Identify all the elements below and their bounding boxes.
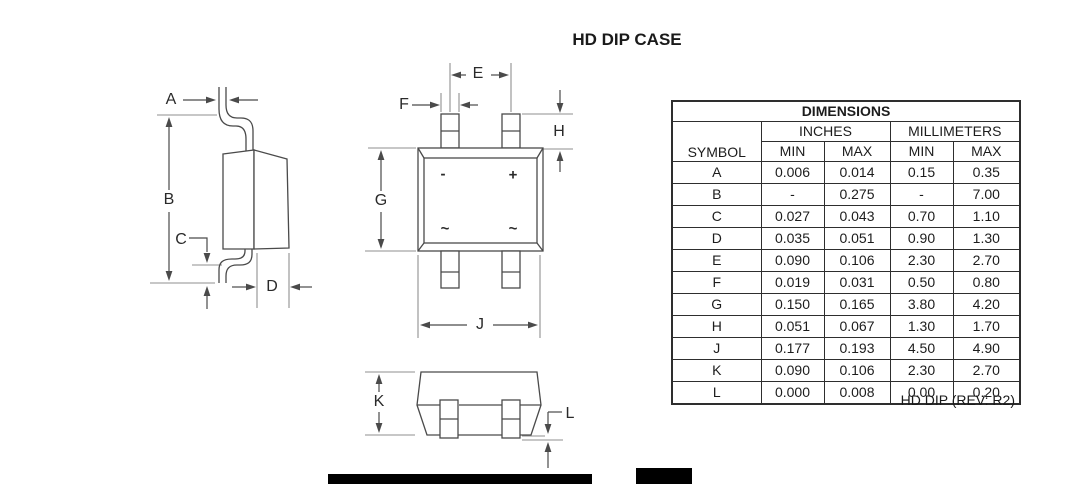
cell: 7.00 (953, 183, 1020, 205)
cell-symbol: K (672, 359, 761, 381)
cell: 0.006 (761, 161, 824, 183)
ac-terminal-mark-left: ~ (441, 222, 450, 237)
table-row: D 0.035 0.051 0.90 1.30 (672, 227, 1020, 249)
cell: 1.30 (890, 315, 953, 337)
cell: 4.50 (890, 337, 953, 359)
cell-symbol: H (672, 315, 761, 337)
dim-label-a: A (166, 92, 177, 108)
unit-group-millimeters: MILLIMETERS (890, 121, 1020, 141)
cell-symbol: A (672, 161, 761, 183)
dim-label-k: K (374, 394, 385, 410)
dim-label-e: E (473, 66, 484, 82)
cell: 0.90 (890, 227, 953, 249)
cell: 1.10 (953, 205, 1020, 227)
cell: 0.067 (824, 315, 890, 337)
cell-symbol: F (672, 271, 761, 293)
dim-label-l: L (566, 406, 575, 422)
cell: 0.090 (761, 249, 824, 271)
cell-symbol: E (672, 249, 761, 271)
datasheet-page: HD DIP CASE (0, 0, 1082, 484)
col-header-symbol: SYMBOL (672, 121, 761, 161)
table-row: A 0.006 0.014 0.15 0.35 (672, 161, 1020, 183)
cell: 4.90 (953, 337, 1020, 359)
cell: 0.051 (761, 315, 824, 337)
table-title: DIMENSIONS (672, 101, 1020, 121)
cell: 0.275 (824, 183, 890, 205)
col-header-min-inches: MIN (761, 141, 824, 161)
dim-label-j: J (476, 317, 484, 333)
cell: 2.70 (953, 359, 1020, 381)
cell: 0.15 (890, 161, 953, 183)
footer-page-marker (636, 468, 692, 484)
table-row: G 0.150 0.165 3.80 4.20 (672, 293, 1020, 315)
cell: 0.027 (761, 205, 824, 227)
cell: 2.30 (890, 359, 953, 381)
dim-label-d: D (266, 279, 278, 295)
col-header-max-mm: MAX (953, 141, 1020, 161)
dim-label-g: G (375, 193, 387, 209)
cell: 0.35 (953, 161, 1020, 183)
cell: 4.20 (953, 293, 1020, 315)
plus-terminal-mark: + (509, 168, 518, 183)
cell: 0.193 (824, 337, 890, 359)
cell: 0.106 (824, 359, 890, 381)
cell: 0.019 (761, 271, 824, 293)
cell: 1.30 (953, 227, 1020, 249)
col-header-max-inches: MAX (824, 141, 890, 161)
cell: 2.30 (890, 249, 953, 271)
cell-symbol: C (672, 205, 761, 227)
cell: 0.80 (953, 271, 1020, 293)
table-row: SYMBOL INCHES MILLIMETERS (672, 121, 1020, 141)
cell: - (761, 183, 824, 205)
dim-label-c: C (175, 232, 187, 248)
cell-symbol: D (672, 227, 761, 249)
col-header-min-mm: MIN (890, 141, 953, 161)
dim-label-b: B (164, 192, 175, 208)
unit-group-inches: INCHES (761, 121, 890, 141)
dim-label-h: H (553, 124, 565, 140)
table-row: C 0.027 0.043 0.70 1.10 (672, 205, 1020, 227)
cell-symbol: G (672, 293, 761, 315)
cell-symbol: J (672, 337, 761, 359)
footer-bar (328, 474, 592, 484)
minus-terminal-mark: - (441, 167, 446, 182)
table-row: J 0.177 0.193 4.50 4.90 (672, 337, 1020, 359)
table-row: B - 0.275 - 7.00 (672, 183, 1020, 205)
table-row: F 0.019 0.031 0.50 0.80 (672, 271, 1020, 293)
cell: - (890, 183, 953, 205)
cell: 0.031 (824, 271, 890, 293)
cell: 0.150 (761, 293, 824, 315)
table-row: DIMENSIONS (672, 101, 1020, 121)
cell-symbol: B (672, 183, 761, 205)
dim-label-f: F (399, 97, 409, 113)
cell: 0.035 (761, 227, 824, 249)
table-row: E 0.090 0.106 2.30 2.70 (672, 249, 1020, 271)
cell: 3.80 (890, 293, 953, 315)
cell: 0.090 (761, 359, 824, 381)
cell: 0.014 (824, 161, 890, 183)
cell: 1.70 (953, 315, 1020, 337)
cell: 0.051 (824, 227, 890, 249)
dimensions-table: DIMENSIONS SYMBOL INCHES MILLIMETERS MIN… (671, 100, 1021, 405)
top-view (365, 63, 573, 338)
table-row: K 0.090 0.106 2.30 2.70 (672, 359, 1020, 381)
revision-caption: HD DIP (REV: R2) (671, 392, 1015, 408)
cell: 0.165 (824, 293, 890, 315)
front-view (365, 372, 563, 468)
cell: 2.70 (953, 249, 1020, 271)
cell: 0.50 (890, 271, 953, 293)
cell: 0.043 (824, 205, 890, 227)
cell: 0.106 (824, 249, 890, 271)
table-row: H 0.051 0.067 1.30 1.70 (672, 315, 1020, 337)
cell: 0.70 (890, 205, 953, 227)
ac-terminal-mark-right: ~ (509, 222, 518, 237)
cell: 0.177 (761, 337, 824, 359)
